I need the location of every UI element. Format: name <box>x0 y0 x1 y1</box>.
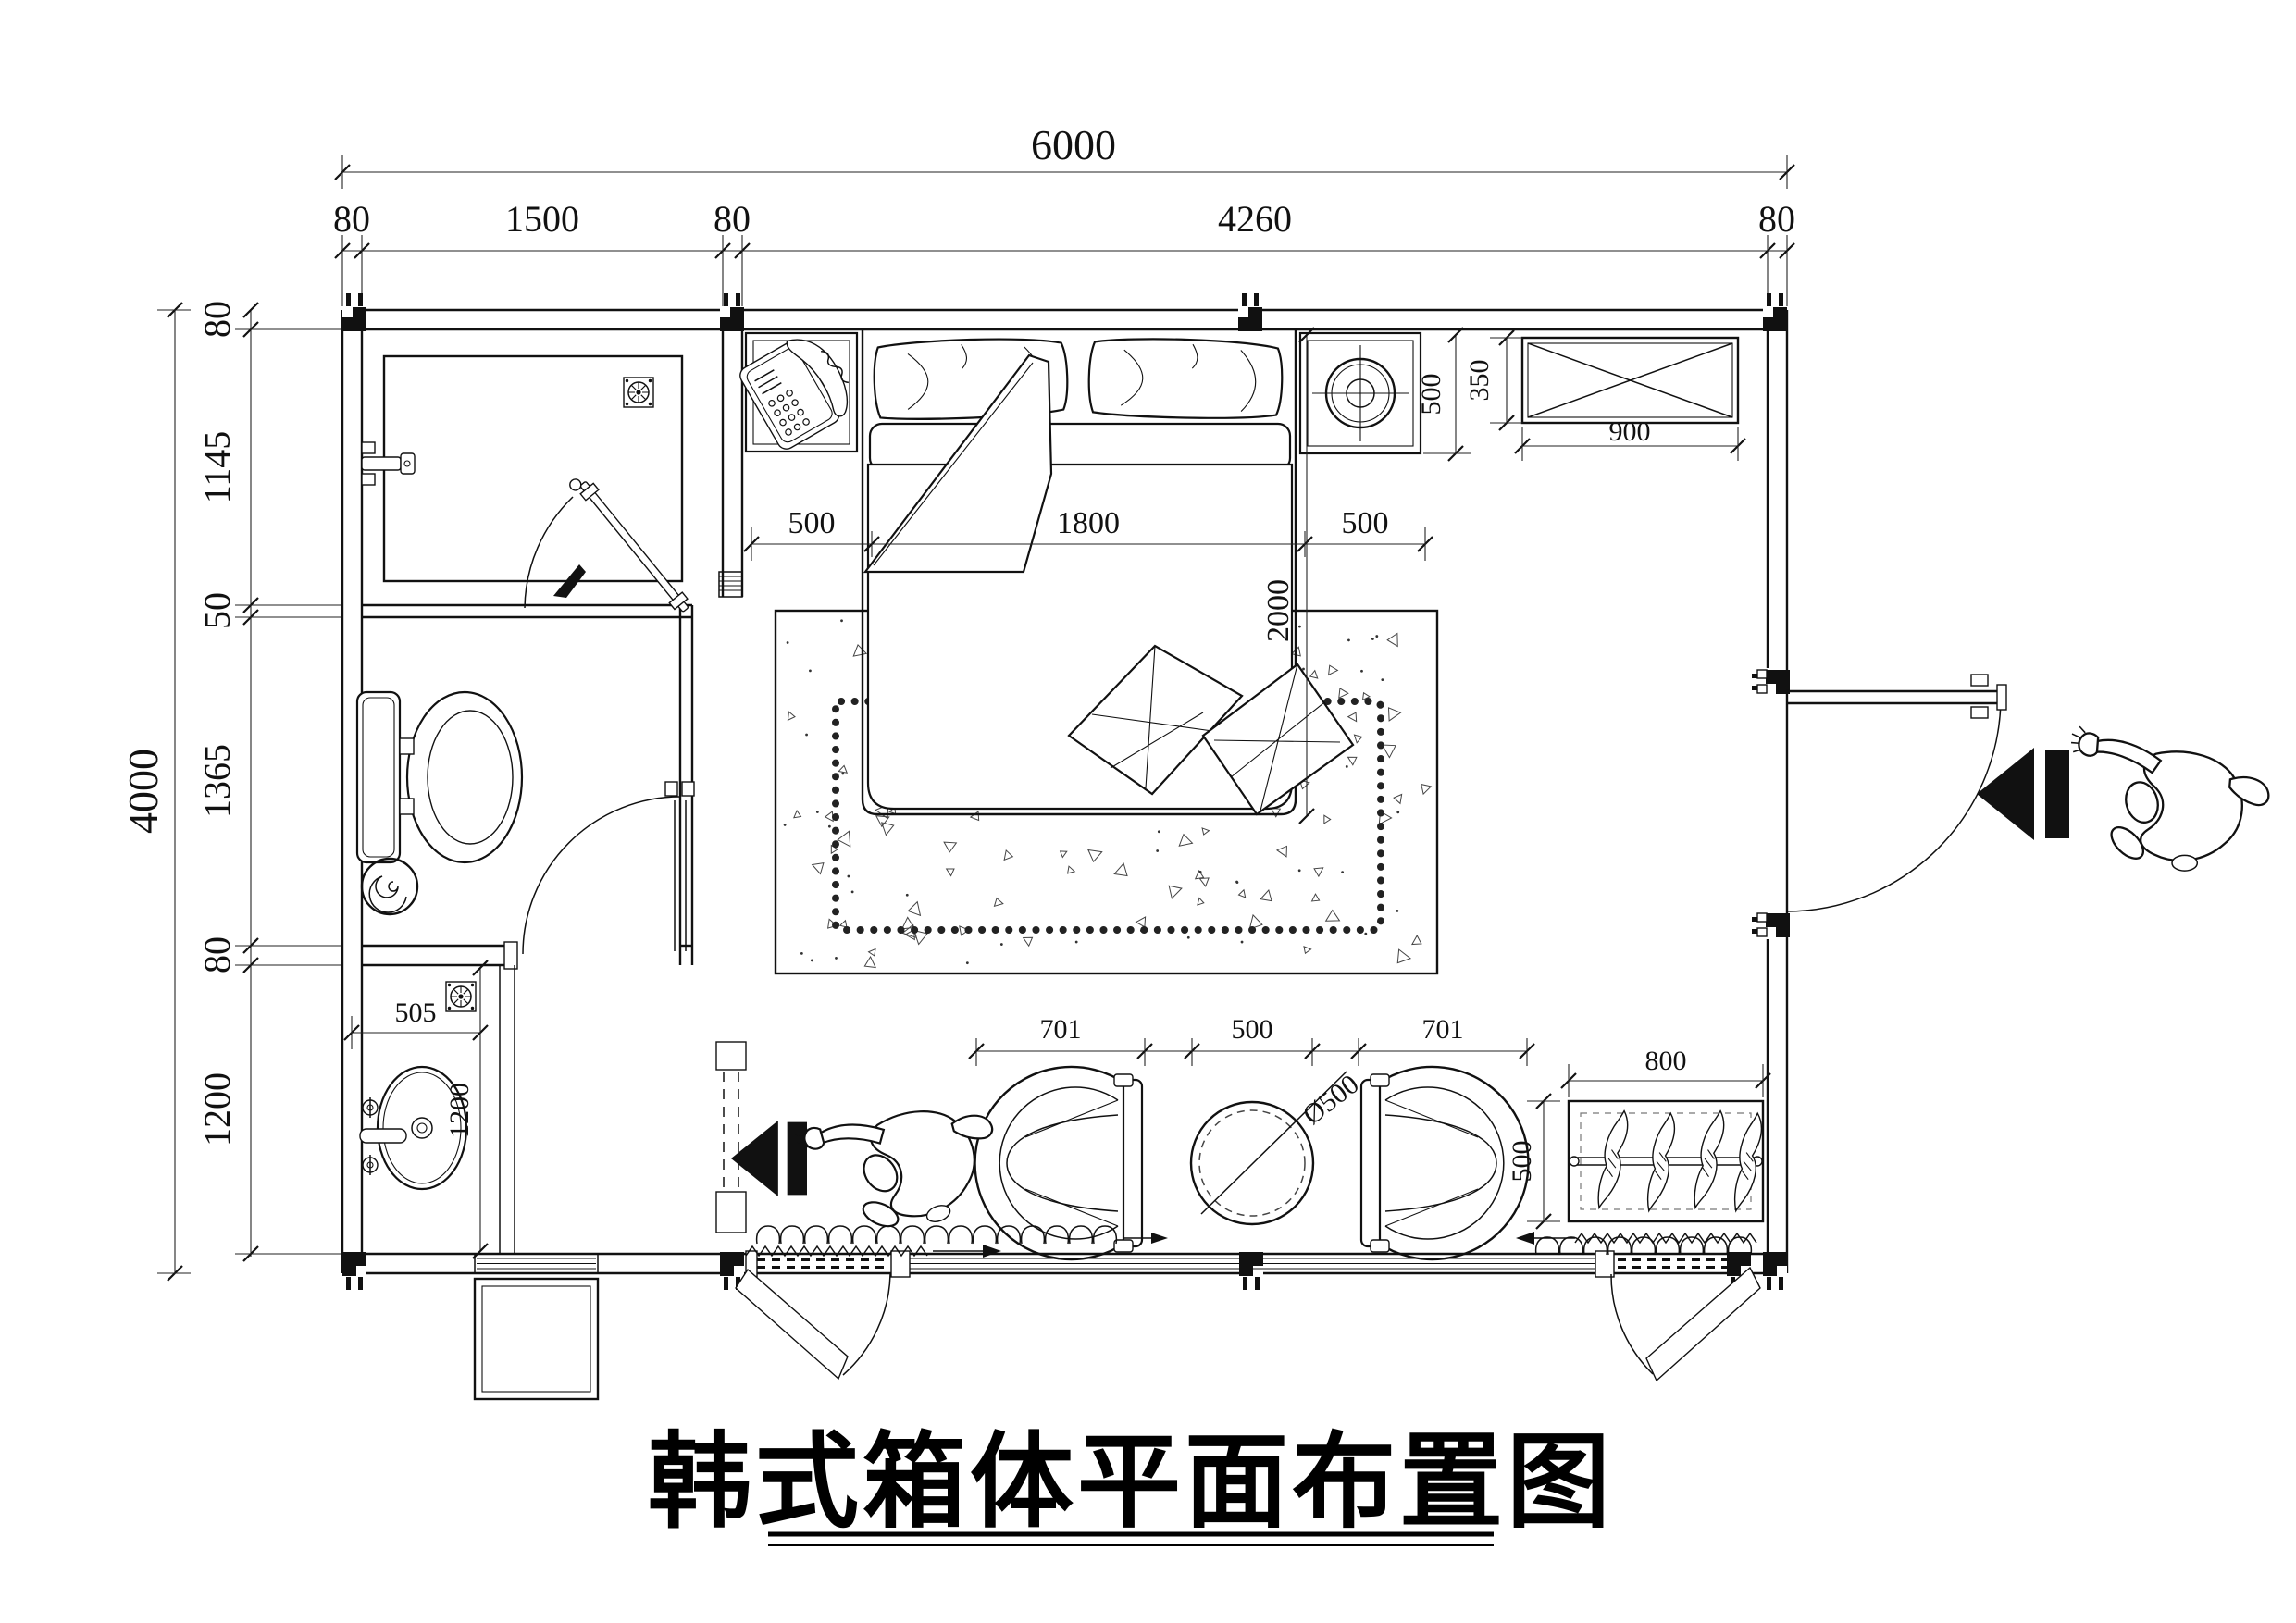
person-top-view-icon <box>794 1099 1004 1243</box>
dim-left-1200: 1200 <box>196 1072 238 1146</box>
column <box>342 293 366 331</box>
dim-table-500: 500 <box>1232 1014 1273 1045</box>
pillow <box>1088 337 1284 420</box>
bed-runner <box>870 424 1290 470</box>
dim-bed-2000: 2000 <box>1261 579 1296 642</box>
dim-cabinet-350: 350 <box>1464 360 1495 402</box>
shower-door <box>525 471 692 617</box>
curtain-zigzag <box>1575 1233 1756 1243</box>
person-top-view-icon <box>2048 725 2275 888</box>
dimension-wardrobe: 800 500 <box>1507 1046 1770 1229</box>
floor-drain-icon <box>446 982 476 1011</box>
bathroom-door <box>523 782 694 954</box>
dimension-left: 4000 80 1145 50 1365 80 1200 <box>119 301 341 1281</box>
terrace-door-left <box>736 1270 890 1379</box>
dim-top-1500: 1500 <box>505 198 579 240</box>
hanger-icon <box>1591 1109 1634 1210</box>
floor-plan-drawing: 6000 80 1500 80 4260 80 4000 80 1145 50 … <box>0 0 2296 1623</box>
dim-1200: 1200 <box>444 1083 475 1138</box>
dim-cabinet-900: 900 <box>1609 416 1651 447</box>
floor-plan-page: 6000 80 1500 80 4260 80 4000 80 1145 50 … <box>0 0 2296 1623</box>
floor-drain-icon <box>624 378 653 407</box>
cabinet-crossbox <box>1522 338 1738 423</box>
toilet-icon <box>357 692 522 862</box>
double-bed <box>863 329 1353 814</box>
dim-bed-1800: 1800 <box>1057 506 1120 540</box>
wardrobe: 800 500 <box>1507 1046 1770 1229</box>
entry-door <box>1786 675 2006 911</box>
door-leaf-dashed <box>757 1260 887 1268</box>
dim-table-diameter: Ø500 <box>1297 1069 1365 1131</box>
dim-left-80b: 80 <box>196 936 238 973</box>
bedroom: 500 1800 500 2000 500 350 900 <box>736 325 1745 824</box>
hanger-icon <box>1641 1111 1681 1213</box>
column <box>720 293 744 331</box>
dim-total-width: 6000 <box>1031 121 1116 168</box>
dim-nightstand-500: 500 <box>1416 374 1446 415</box>
dim-bed-500r: 500 <box>1342 506 1389 540</box>
dim-left-50: 50 <box>196 592 238 629</box>
column <box>1239 1252 1263 1290</box>
washer-spiral-icon <box>362 859 417 914</box>
drawing-title: 韩式箱体平面布置图 <box>648 1424 1614 1545</box>
terrace-door-right <box>1611 1268 1760 1381</box>
dim-top-4260: 4260 <box>1218 198 1292 240</box>
nightstand-right <box>1300 333 1421 453</box>
dim-top-80b: 80 <box>714 198 751 240</box>
door-jamb <box>504 942 517 969</box>
column <box>1763 1252 1787 1290</box>
bathroom: 505 1200 <box>344 356 694 1258</box>
dim-top-80a: 80 <box>333 198 370 240</box>
dim-left-1145: 1145 <box>196 431 238 504</box>
dim-chair-701l: 701 <box>1040 1014 1082 1045</box>
hanger-icon <box>1687 1109 1731 1210</box>
dim-top-80c: 80 <box>1758 198 1795 240</box>
armchair-right <box>1361 1067 1528 1259</box>
dim-bed-500l: 500 <box>788 506 836 540</box>
column <box>342 1252 366 1290</box>
dim-left-1365: 1365 <box>196 744 238 818</box>
dimension-top: 6000 80 1500 80 4260 80 <box>333 121 1795 306</box>
dimension-seating: 701 500 701 <box>969 1014 1534 1066</box>
outdoor-step-platform <box>475 1279 598 1399</box>
direction-arrow-icon <box>731 1121 807 1196</box>
window-glazing <box>477 1258 596 1269</box>
curtain-loops <box>757 1226 1117 1244</box>
title-text: 韩式箱体平面布置图 <box>648 1424 1614 1540</box>
entry <box>1786 675 2275 911</box>
shower-valve-icon <box>362 442 415 485</box>
dim-total-height: 4000 <box>119 749 167 834</box>
dim-505: 505 <box>395 997 437 1028</box>
dim-left-80a: 80 <box>196 301 238 338</box>
round-table: Ø500 <box>1191 1069 1365 1224</box>
dim-wardrobe-800: 800 <box>1645 1046 1687 1076</box>
dim-wardrobe-500: 500 <box>1507 1141 1537 1183</box>
nightstand-left <box>736 325 863 452</box>
seating-area: 701 500 701 Ø500 <box>969 1014 1534 1259</box>
hallway <box>716 1042 1004 1243</box>
door-leaf-dashed <box>1618 1260 1732 1268</box>
dim-chair-701r: 701 <box>1422 1014 1464 1045</box>
column <box>1763 293 1787 331</box>
column <box>1238 293 1262 331</box>
